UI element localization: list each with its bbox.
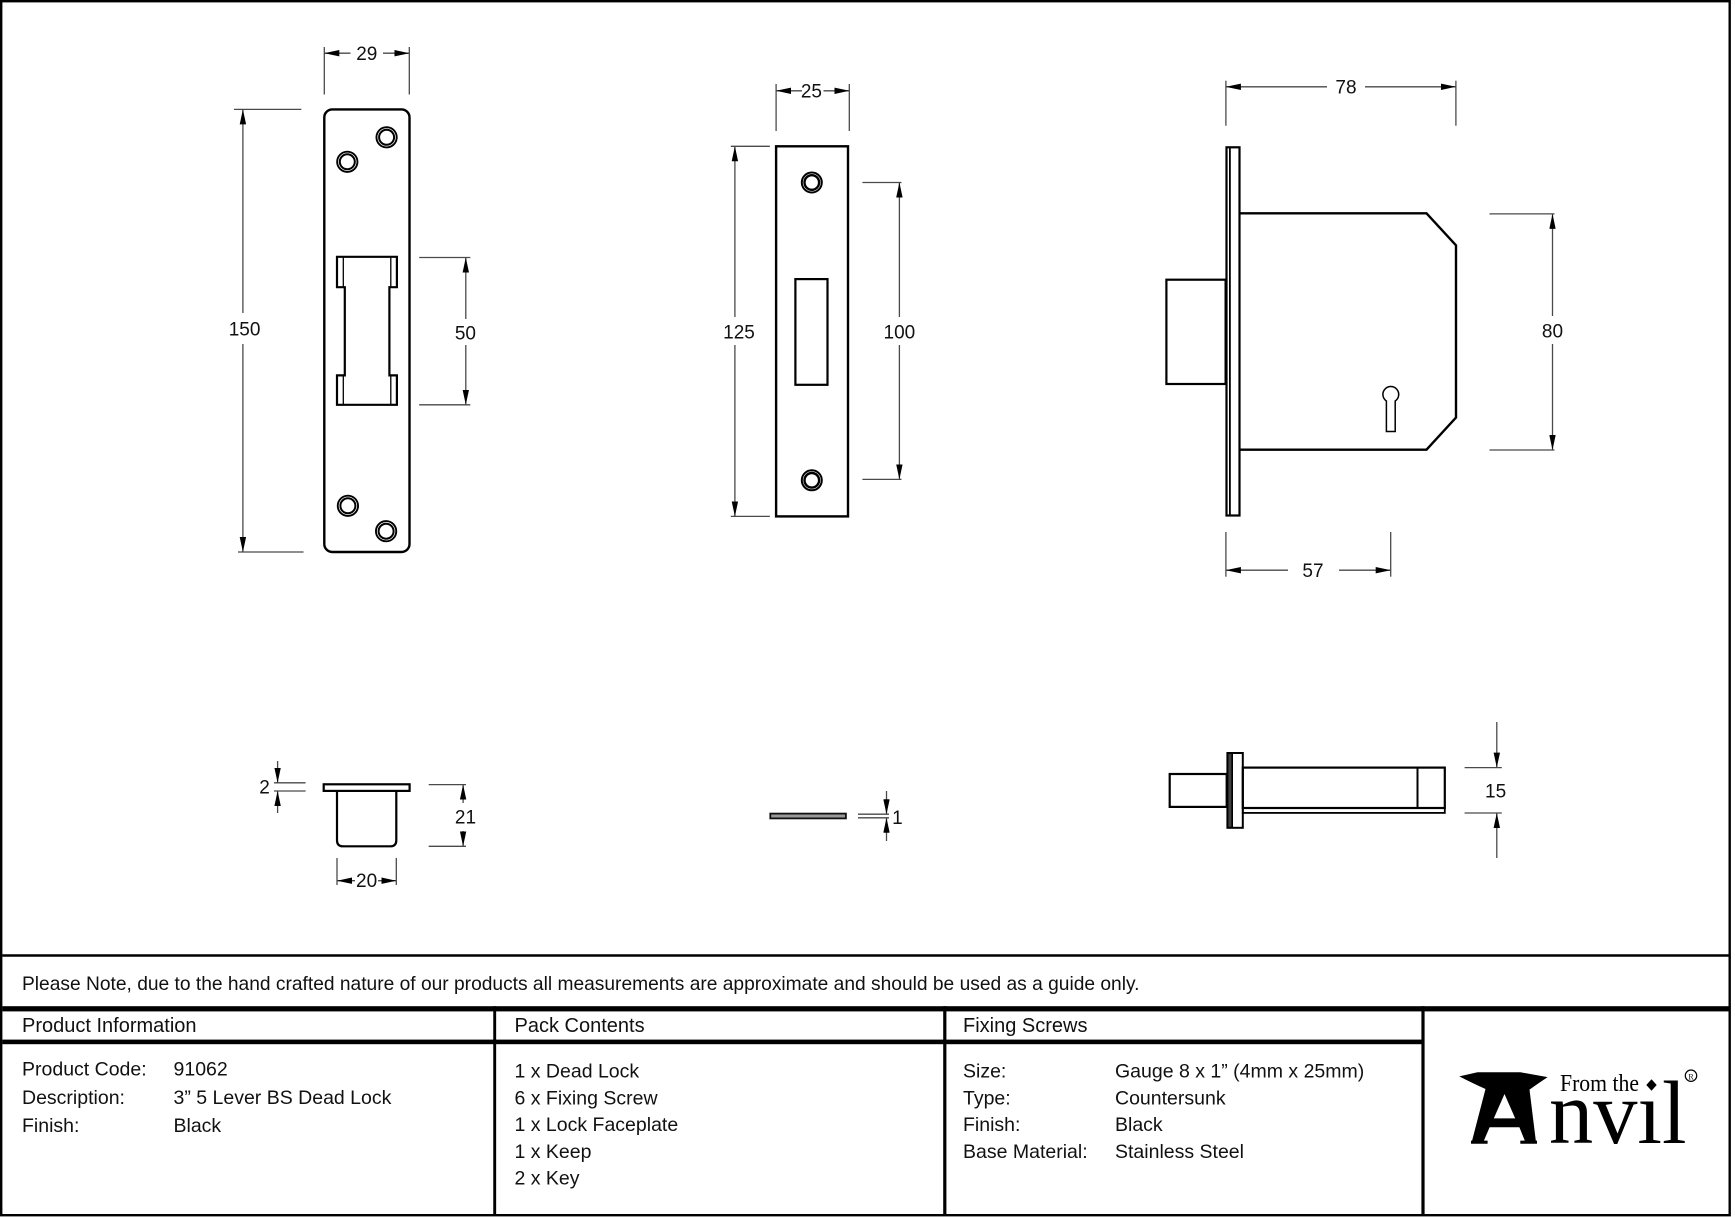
svg-text:1 x Lock Faceplate: 1 x Lock Faceplate — [515, 1114, 679, 1136]
svg-text:Black: Black — [174, 1115, 222, 1137]
svg-text:6 x Fixing Screw: 6 x Fixing Screw — [515, 1087, 659, 1109]
svg-text:91062: 91062 — [174, 1059, 228, 1081]
svg-text:2 x Key: 2 x Key — [515, 1168, 580, 1190]
svg-text:2: 2 — [259, 777, 270, 798]
svg-text:1 x Dead Lock: 1 x Dead Lock — [515, 1061, 640, 1083]
svg-text:Black: Black — [1115, 1114, 1163, 1136]
svg-text:Countersunk: Countersunk — [1115, 1087, 1226, 1109]
svg-text:80: 80 — [1542, 322, 1563, 343]
svg-text:Fixing Screws: Fixing Screws — [963, 1015, 1087, 1037]
svg-text:Gauge 8 x 1” (4mm x 25mm): Gauge 8 x 1” (4mm x 25mm) — [1115, 1061, 1364, 1083]
svg-text:15: 15 — [1485, 782, 1506, 803]
svg-text:Pack Contents: Pack Contents — [515, 1015, 645, 1037]
svg-text:Description:: Description: — [22, 1087, 125, 1109]
svg-text:57: 57 — [1302, 561, 1323, 582]
svg-text:1: 1 — [892, 808, 903, 829]
svg-text:R: R — [1688, 1073, 1694, 1082]
svg-text:Product Code:: Product Code: — [22, 1059, 147, 1081]
svg-text:Please Note, due to the hand c: Please Note, due to the hand crafted nat… — [22, 974, 1139, 995]
svg-text:Type:: Type: — [963, 1087, 1011, 1109]
svg-text:Base Material:: Base Material: — [963, 1141, 1088, 1163]
svg-text:100: 100 — [884, 322, 916, 343]
svg-text:29: 29 — [356, 44, 377, 65]
svg-text:50: 50 — [455, 323, 476, 344]
svg-text:1 x Keep: 1 x Keep — [515, 1141, 592, 1163]
svg-text:3” 5 Lever BS Dead Lock: 3” 5 Lever BS Dead Lock — [174, 1087, 392, 1109]
svg-text:Size:: Size: — [963, 1061, 1006, 1083]
svg-text:Finish:: Finish: — [22, 1115, 79, 1137]
svg-text:21: 21 — [455, 808, 476, 829]
svg-text:Product Information: Product Information — [22, 1015, 197, 1037]
svg-text:25: 25 — [801, 82, 822, 103]
svg-text:Finish:: Finish: — [963, 1114, 1020, 1136]
svg-text:Stainless Steel: Stainless Steel — [1115, 1141, 1244, 1163]
svg-text:20: 20 — [356, 871, 377, 892]
svg-text:125: 125 — [723, 322, 755, 343]
svg-text:nvıl: nvıl — [1549, 1064, 1687, 1163]
svg-text:150: 150 — [229, 320, 261, 341]
svg-text:78: 78 — [1335, 78, 1356, 99]
